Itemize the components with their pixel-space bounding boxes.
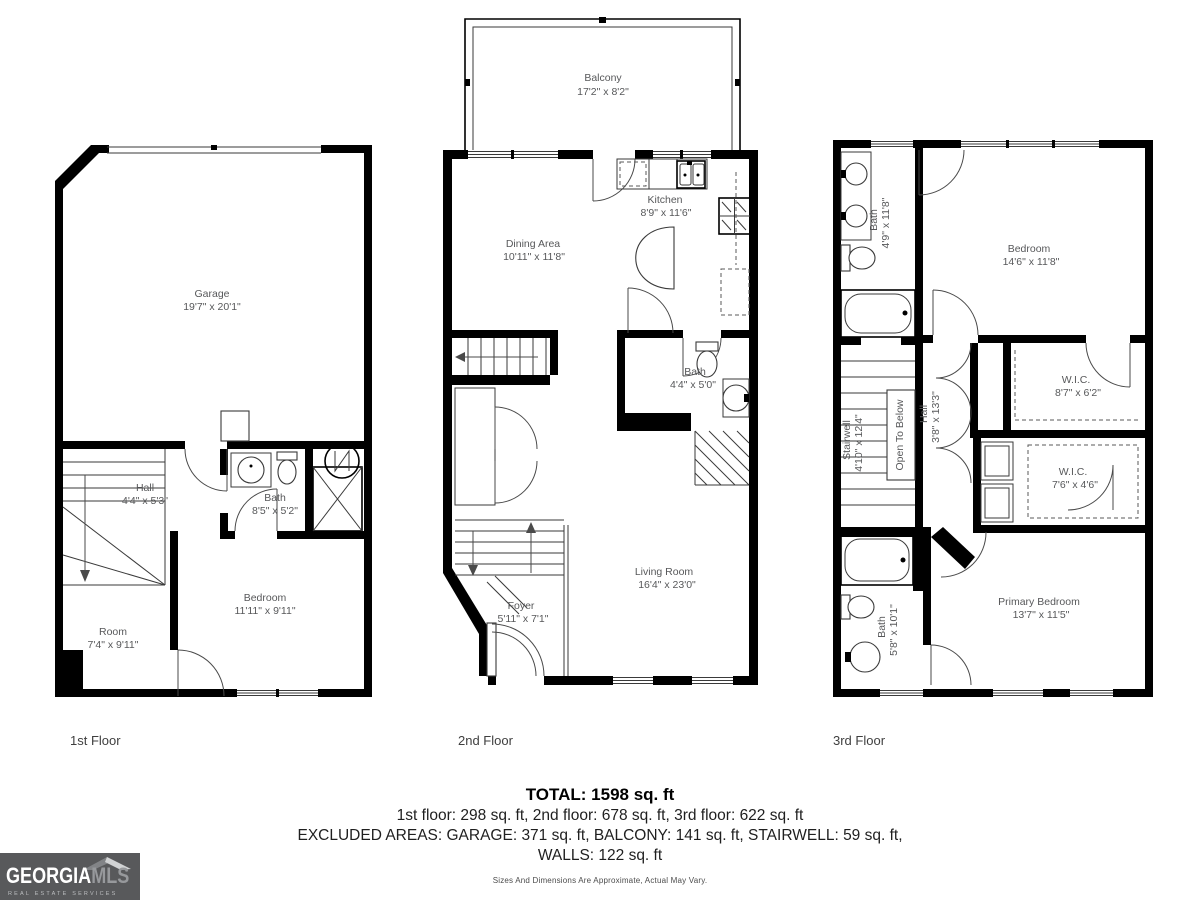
- excluded-areas-line2: WALLS: 122 sq. ft: [0, 846, 1200, 866]
- entry-door: [487, 623, 544, 676]
- refrigerator: [721, 172, 749, 315]
- wic2-label: W.I.C.: [1059, 466, 1088, 478]
- stair-railing: [564, 525, 568, 676]
- third-floor-plan: Bath 4'9" x 11'8" Bedroom 14'6" x 11'8" …: [833, 140, 1153, 697]
- area-summary: TOTAL: 1598 sq. ft 1st floor: 298 sq. ft…: [0, 784, 1200, 885]
- bath3-dims: 4'9" x 11'8": [880, 197, 892, 248]
- floor-areas: 1st floor: 298 sq. ft, 2nd floor: 678 sq…: [0, 806, 1200, 826]
- stairwell-dims: 4'10" x 12'4": [853, 414, 865, 472]
- water-heater: [221, 411, 249, 441]
- bedroom3-label: Bedroom: [1008, 243, 1051, 255]
- room-dims: 7'4" x 9'11": [88, 639, 139, 651]
- bath-fixtures: [231, 452, 297, 487]
- mid-stairs: [455, 338, 546, 375]
- second-floor-drawing: Balcony 17'2" x 8'2": [443, 17, 763, 692]
- top-windows: [871, 140, 1099, 148]
- bath2-label: Bath: [684, 366, 706, 378]
- garage-door: [107, 145, 321, 153]
- third-floor-drawing: Bath 4'9" x 11'8" Bedroom 14'6" x 11'8" …: [833, 140, 1153, 697]
- bedroom3-doors: [919, 150, 978, 335]
- georgia-mls-logo: GEORGIAMLS REAL ESTATE SERVICES: [0, 853, 140, 900]
- bedroom-label: Bedroom: [244, 592, 287, 604]
- garage-label: Garage: [194, 288, 229, 300]
- logo-wordmark: GEORGIAMLS: [6, 863, 129, 889]
- first-floor-walls: [55, 145, 372, 697]
- second-floor-walls: [443, 150, 758, 685]
- logo-georgia-text: GEORGIA: [6, 863, 91, 888]
- hall-label: Hall: [136, 482, 154, 494]
- stair-opening-hatch: [695, 431, 749, 485]
- kitchen-label: Kitchen: [647, 194, 682, 206]
- electrical-panel-icon: [325, 444, 359, 478]
- balcony-door: [593, 159, 635, 201]
- first-floor-caption: 1st Floor: [70, 733, 121, 748]
- logo-tagline: REAL ESTATE SERVICES: [8, 891, 118, 897]
- hall3-dims: 3'8" x 13'3": [930, 391, 942, 443]
- bottom-windows: [880, 691, 1113, 696]
- hall3-label: Hall: [918, 405, 930, 423]
- room-label: Room: [99, 626, 127, 638]
- logo-mls-text: MLS: [91, 863, 129, 888]
- bath3-label: Bath: [868, 209, 880, 231]
- bath-dims: 8'5" x 5'2": [252, 505, 298, 517]
- bedroom-window: [237, 689, 318, 697]
- disclaimer: Sizes And Dimensions Are Approximate, Ac…: [0, 876, 1200, 885]
- door-arcs: [178, 449, 277, 696]
- wic1-label: W.I.C.: [1062, 374, 1091, 386]
- bath4-label: Bath: [876, 616, 888, 638]
- dining-table: [636, 227, 674, 289]
- living-label: Living Room: [635, 566, 694, 578]
- kitchen-dims: 8'9" x 11'6": [641, 207, 692, 219]
- dining-label: Dining Area: [506, 238, 560, 250]
- bath3-fixtures: [841, 152, 915, 337]
- balcony-dims: 17'2" x 8'2": [577, 86, 629, 98]
- dining-dims: 10'11" x 11'8": [503, 251, 565, 263]
- wic1-dims: 8'7" x 6'2": [1055, 387, 1101, 399]
- bath-label: Bath: [264, 492, 286, 504]
- bedroom-dims: 11'11" x 9'11": [234, 605, 295, 617]
- hall-door: [628, 288, 673, 333]
- foyer-label: Foyer: [508, 600, 535, 612]
- open-to-below-label: Open To Below: [894, 399, 906, 470]
- primary-dims: 13'7" x 11'5": [1013, 609, 1070, 621]
- bath2-dims: 4'4" x 5'0": [670, 379, 716, 391]
- kitchen-sink: [677, 161, 705, 188]
- wic2-dims: 7'6" x 4'6": [1052, 479, 1098, 491]
- living-dims: 16'4" x 23'0": [638, 579, 696, 591]
- foyer-dims: 5'11" x 7'1": [498, 613, 549, 625]
- stove: [719, 198, 750, 234]
- total-area: TOTAL: 1598 sq. ft: [0, 784, 1200, 806]
- excluded-areas-line1: EXCLUDED AREAS: GARAGE: 371 sq. ft, BALC…: [0, 826, 1200, 846]
- bedroom3-dims: 14'6" x 11'8": [1003, 256, 1060, 268]
- first-floor-plan: Garage 19'7" x 20'1" Hall 4'4" x 5'3" Ba…: [55, 145, 372, 697]
- garage-dims: 19'7" x 20'1": [183, 301, 241, 313]
- bath4-dims: 5'8" x 10'1": [888, 604, 900, 656]
- balcony-label: Balcony: [584, 72, 622, 84]
- closet: [455, 388, 537, 505]
- first-floor-stairs: [63, 449, 165, 585]
- third-floor-caption: 3rd Floor: [833, 733, 885, 748]
- second-floor-plan: Balcony 17'2" x 8'2": [443, 17, 763, 692]
- stairwell-label: Stairwell: [841, 420, 853, 460]
- bath4-fixtures: [841, 535, 971, 685]
- hall-dims: 4'4" x 5'3": [122, 495, 168, 507]
- first-floor-drawing: Garage 19'7" x 20'1" Hall 4'4" x 5'3" Ba…: [55, 145, 372, 697]
- primary-label: Primary Bedroom: [998, 596, 1080, 608]
- second-floor-caption: 2nd Floor: [458, 733, 513, 748]
